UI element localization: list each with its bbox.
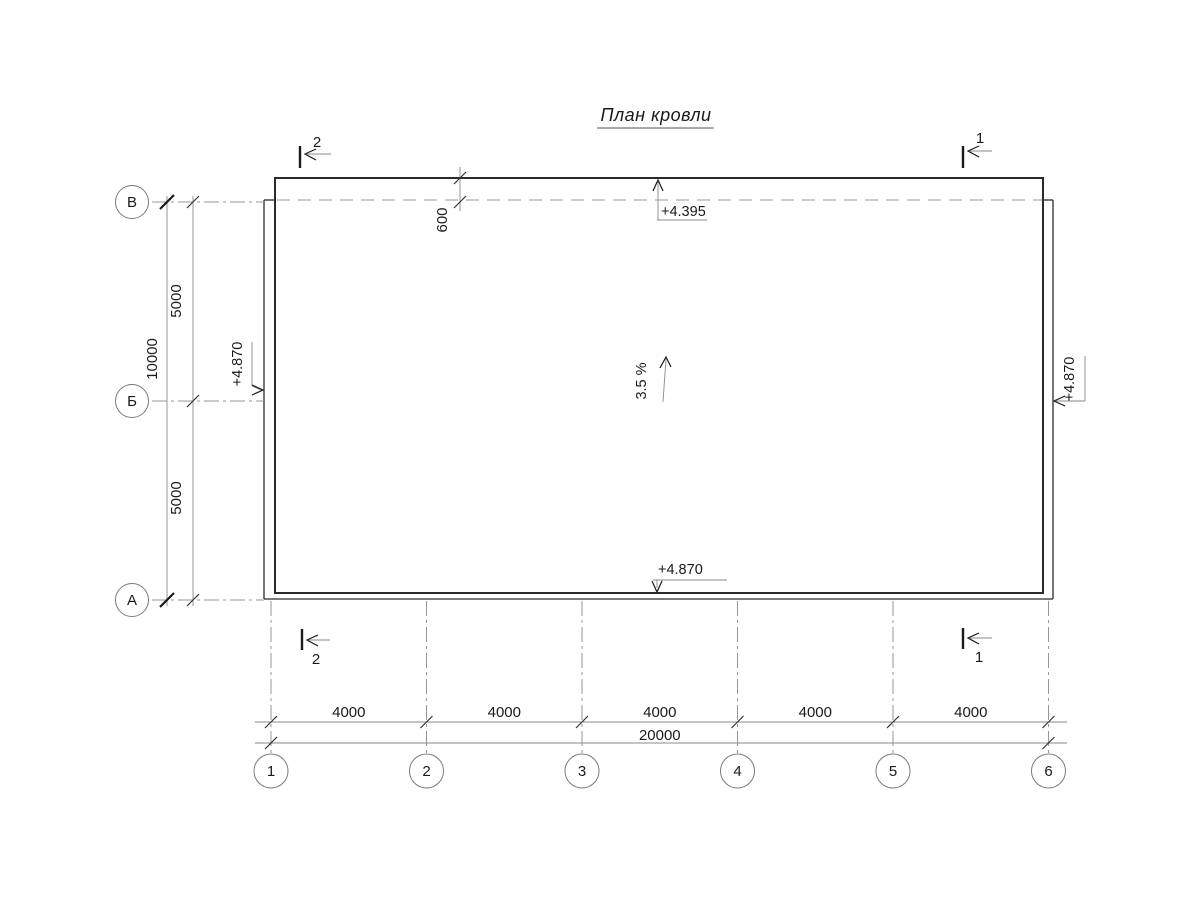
dim-label-4000-3: 4000 <box>643 704 676 721</box>
section-mark-1-top: 1 <box>963 130 992 168</box>
axis-label-col-2: 2 <box>422 763 430 780</box>
roof-outline <box>264 178 1053 599</box>
column-axes: 1 2 3 4 5 6 <box>254 601 1066 788</box>
axis-label-col-3: 3 <box>578 763 586 780</box>
section-mark-2-bottom: 2 <box>302 629 330 668</box>
elevation-mark-right: +4.870 <box>1054 356 1085 406</box>
axis-label-row-b: Б <box>127 393 137 410</box>
section-label-1-bottom: 1 <box>975 649 983 666</box>
roof-plan-sheet: План кровли В Б А 1 <box>0 0 1200 900</box>
section-mark-2-top: 2 <box>300 134 331 168</box>
slope-annotation: 3.5 % <box>634 357 671 402</box>
roof-slab-edge <box>275 178 1043 593</box>
elev-label-left: +4.870 <box>230 342 246 387</box>
elev-label-bottom: +4.870 <box>658 562 703 578</box>
axis-label-col-5: 5 <box>889 763 897 780</box>
axis-label-col-6: 6 <box>1044 763 1052 780</box>
elev-label-top: +4.395 <box>661 204 706 220</box>
dim-label-4000-4: 4000 <box>799 704 832 721</box>
dim-label-left-5000-upper: 5000 <box>168 284 185 317</box>
dim-label-600: 600 <box>434 207 451 232</box>
section-label-1-top: 1 <box>976 130 984 147</box>
roof-plan-drawing: План кровли В Б А 1 <box>0 0 1200 900</box>
dim-label-4000-2: 4000 <box>488 704 521 721</box>
elev-label-right: +4.870 <box>1062 357 1078 402</box>
axis-label-row-v: В <box>127 194 137 211</box>
section-mark-1-bottom: 1 <box>963 628 992 666</box>
arrow-left-icon <box>307 635 318 646</box>
title-block: План кровли <box>597 105 714 128</box>
axis-label-col-4: 4 <box>733 763 741 780</box>
slope-label: 3.5 % <box>634 362 650 399</box>
dim-label-4000-5: 4000 <box>954 704 987 721</box>
row-axes: В Б А <box>116 186 265 617</box>
slope-arrow-line <box>663 359 666 402</box>
axis-label-col-1: 1 <box>267 763 275 780</box>
dim-label-total-20000: 20000 <box>639 727 681 744</box>
arrow-left-icon <box>968 633 979 644</box>
dim-label-4000-1: 4000 <box>332 704 365 721</box>
section-label-2-bottom: 2 <box>312 651 320 668</box>
dim-label-left-5000-lower: 5000 <box>168 481 185 514</box>
section-label-2-top: 2 <box>313 134 321 151</box>
axis-label-row-a: А <box>127 592 137 609</box>
elevation-mark-bottom: +4.870 <box>652 562 727 592</box>
elevation-mark-left: +4.870 <box>230 342 263 395</box>
page-title: План кровли <box>600 105 711 125</box>
bottom-dimensions: 4000 4000 4000 4000 4000 20000 <box>255 704 1067 749</box>
arrow-left-icon <box>968 146 979 157</box>
dim-label-left-total-10000: 10000 <box>144 338 161 380</box>
